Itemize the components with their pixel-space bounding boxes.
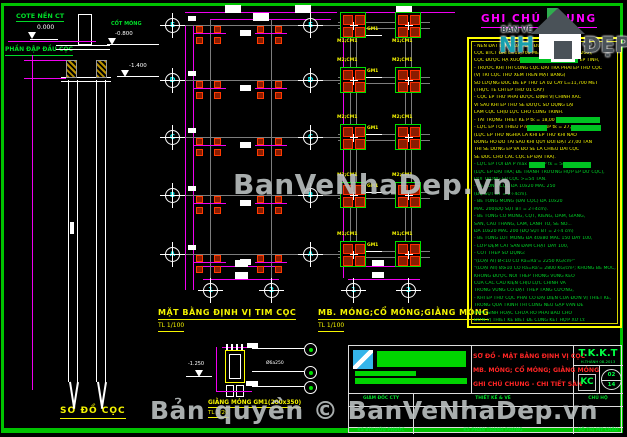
footing: [395, 241, 421, 267]
grid-bubble: 2: [401, 283, 416, 298]
grid-bubble: 2: [264, 283, 279, 298]
stage-date: H.THÀNH 08-2013: [575, 359, 621, 364]
pile-square: [214, 196, 221, 203]
grid-bubble: C: [165, 130, 180, 145]
note-line: - BÊ TÔNG LÓT MÓNG ĐÁ 40x80 MÁC 150 DÀY …: [474, 236, 618, 243]
dimension-line: [348, 279, 420, 280]
redaction-highlight: [571, 125, 601, 131]
divider: [349, 393, 623, 394]
construction-line: [56, 49, 110, 50]
foundation-level-value: -0.800: [115, 31, 133, 37]
dimension-text: [240, 259, 251, 265]
leader-line: [366, 35, 382, 36]
pile-square: [196, 196, 203, 203]
logo-text-main: NH: [499, 34, 534, 57]
footing-pile: [355, 70, 365, 80]
pile-square: [275, 266, 282, 273]
pile-elevation-title: SƠ ĐỒ CỌC: [60, 407, 126, 419]
footing-pile: [410, 70, 420, 80]
signature-name: VÕ THỊ MỸ CHÂU: [573, 428, 623, 433]
note-line: - LỚP ĐỆM CÁT SAN ĐẦM CHẶT DÀY 100,: [474, 244, 618, 251]
drawing-title: GHI CHÚ CHUNG - CHI TIẾT SÀN: [473, 381, 571, 388]
dimension-text: [188, 16, 196, 21]
construction-line: [56, 45, 110, 46]
note-line: SÀN, CẦU THANG, LAM, LANH TÔ, SÊ NÔ...: [474, 222, 618, 229]
footing-pile: [343, 70, 353, 80]
divider: [573, 365, 623, 366]
construction-line: [252, 386, 304, 387]
center-cross: [408, 134, 409, 142]
footing: [395, 12, 421, 38]
dimension-text: [188, 245, 196, 250]
beam-stirrup: [229, 354, 241, 379]
grid-line: [271, 20, 272, 292]
dimension-text: [188, 71, 196, 76]
footing-label: M1;CM1: [392, 233, 412, 238]
footing-label: M1;CM1: [337, 40, 357, 45]
beam-label: GM1: [367, 244, 378, 249]
pile-square: [214, 37, 221, 44]
pile-square: [257, 266, 264, 273]
pile-axis-mark: [255, 88, 287, 89]
dimension-text: [253, 13, 269, 21]
footing-pile: [355, 82, 365, 92]
footing-pile: [343, 15, 353, 25]
footing-pile: [410, 82, 420, 92]
company-bar: [355, 371, 416, 376]
pile-square: [257, 138, 264, 145]
pile-square: [214, 149, 221, 156]
construction-line: [186, 376, 212, 377]
foundation-plan-scale: TL 1/100: [318, 323, 344, 332]
note-line: SẼ ĐÚC CHO CÁC CỌC ÉP ĐẠI TRÀ).: [474, 155, 618, 162]
note-line: - TRƯỚC KHI THI CÔNG CỌC ĐẠI TRÀ PHẢI ÉP…: [474, 66, 618, 73]
leader-line: [366, 77, 382, 78]
note-line: KHÔNG ĐƯỢC NỐI THÉP TRONG VÙNG KÉO: [474, 274, 618, 281]
grid-line: [210, 20, 211, 292]
footing-label: M2;CM1: [392, 116, 412, 121]
rebar-callout: [304, 381, 317, 394]
pile-square: [214, 266, 221, 273]
signature-name: KS PHAN THANH PHONG: [413, 428, 573, 433]
grid-bubble: E: [165, 18, 180, 33]
pile-head-hatch: [96, 60, 107, 78]
note-line: - BÊ TÔNG CỔ MÓNG, CỘT, KIỀNG, DẦM, GIẰN…: [474, 214, 618, 221]
note-line: (THỰC TẾ CHỈ ÉP THỬ 01 CÂY): [474, 88, 618, 95]
grid-bubble: 1: [203, 283, 218, 298]
footing-pile: [355, 139, 365, 149]
dimension-text: [188, 186, 196, 191]
sheet-number-bubble: 02 14: [601, 369, 622, 390]
pile-square: [275, 138, 282, 145]
footing-pile: [343, 27, 353, 37]
footing-pile: [398, 139, 408, 149]
pile-plan-scale: TL 1/100: [158, 323, 184, 332]
foundation-level-label: CỐT MÓNG: [111, 22, 142, 28]
dimension-line: [185, 25, 186, 290]
note-line: "(LOẠI AI) Ø<10 CÓ Ra=Ra'= 2250 KG/cm²": [474, 259, 618, 266]
footing-label: M2;CM1: [337, 59, 357, 64]
footing-pile: [355, 244, 365, 254]
pile-square: [257, 92, 264, 99]
cote-label: COTE NỀN CT: [16, 13, 64, 22]
redaction-highlight: [563, 162, 591, 168]
construction-line: [117, 76, 159, 77]
watermark-bottom: Bản quyền © BanVeNhaDep.vn: [150, 396, 598, 425]
note-line: VÌ SAU KHI ÉP THỬ SẼ ĐƯỢC SỬ DỤNG LẠI: [474, 103, 618, 110]
pile-axis-mark: [194, 203, 226, 204]
pile-axis-mark: [194, 262, 226, 263]
divider: [599, 365, 600, 393]
note-line: ĐÁ 10x20 MÁC 200 (ĐỘ SỤT BT = 2÷4 cm): [474, 229, 618, 236]
note-line: ĐỒNG HỒ ĐO TẢI SAU KHI QUY ĐỔI ĐẠT 27,00…: [474, 140, 618, 147]
logo-text-suffix: ĐẸP: [583, 34, 627, 57]
dimension-text: [372, 272, 384, 278]
pile-square: [214, 92, 221, 99]
grid-bubble: 1: [346, 283, 361, 298]
note-line: "(LOẠI AII) Ø≥10 CÓ Ra=Ra'= 2800 KG/cm²;…: [474, 266, 618, 273]
pencil-icon: [353, 350, 373, 369]
pile-square: [214, 26, 221, 33]
dimension-text: [240, 142, 251, 148]
company-bar: [377, 351, 466, 367]
dimension-line: [216, 347, 217, 391]
center-cross: [353, 22, 354, 30]
pile-square: [275, 255, 282, 262]
pile-square: [257, 37, 264, 44]
center-cross: [353, 77, 354, 85]
note-line: (LỰC ÉP THỬ NGHĨA LÀ KHI ÉP THỬ KHI NÀO: [474, 133, 618, 140]
grid-bubble: B: [165, 188, 180, 203]
beam-label: GM1: [367, 127, 378, 132]
cad-drawing-canvas: COTE NỀN CT 0.000 CỐT MÓNG -0.800 PHẦN Đ…: [0, 0, 627, 437]
dowel-tick: [226, 344, 228, 350]
footing-pile: [343, 82, 353, 92]
pile-square: [196, 81, 203, 88]
dimension-line: [8, 41, 96, 42]
footing-pile: [355, 27, 365, 37]
pile-square: [196, 266, 203, 273]
center-cross: [408, 22, 409, 30]
footing-pile: [398, 15, 408, 25]
grid-bubble: A: [303, 247, 318, 262]
leader-line: [366, 134, 382, 135]
footing-label: M1;CM1: [337, 233, 357, 238]
note-line: THÌ SẼ DỪNG ÉP VÀ ĐÓ SẼ LÀ CHIỀU DÀI CỌC: [474, 147, 618, 154]
footing-label: M1;CM1: [392, 40, 412, 45]
center-cross: [353, 251, 354, 259]
level-flag: [28, 32, 36, 39]
dowel-tick: [236, 344, 238, 350]
pile-axis-mark: [255, 203, 287, 204]
center-cross: [405, 137, 413, 138]
company-bar: [355, 378, 467, 384]
center-cross: [350, 25, 358, 26]
footing-pile: [355, 127, 365, 137]
stirrup-label: Ø6a250: [266, 362, 284, 367]
signature-name: KS BÙI HỮU PHƯỚC: [349, 428, 413, 433]
footing: [395, 67, 421, 93]
footing-pile: [398, 70, 408, 80]
center-cross: [405, 80, 413, 81]
pile-square: [257, 207, 264, 214]
note-line: TRONG QUÁ TRÌNH THI CÔNG NẾU GẶP VẤN ĐỀ: [474, 303, 618, 310]
dimension-line: [216, 391, 252, 392]
note-line: MÁC 200(ĐỘ SỤT BT = 2÷4cm).: [474, 207, 618, 214]
pile-square: [257, 26, 264, 33]
pile-square: [275, 207, 282, 214]
grid-bubble: D: [165, 73, 180, 88]
dimension-line: [203, 279, 279, 280]
footing-pile: [398, 27, 408, 37]
construction-line: [107, 44, 159, 45]
pile-square: [196, 37, 203, 44]
beam-label: GM1: [367, 70, 378, 75]
note-line: - CỌC ÉP THỬ PHẢI ĐƯỢC ĐỊNH VỊ CHÍNH XÁC: [474, 95, 618, 102]
foundation-plan-title: MB. MÓNG;CỔ MÓNG;GIẰNG MÓNG: [318, 309, 489, 320]
dimension-text: [235, 272, 248, 279]
drawing-title: SƠ ĐỒ - MẶT BẰNG ĐỊNH VỊ CỌC: [473, 353, 571, 360]
center-cross: [350, 80, 358, 81]
divider: [602, 380, 621, 381]
footing-pile: [410, 139, 420, 149]
construction-line: [30, 39, 58, 40]
pile-square: [196, 92, 203, 99]
footing-label: M2;CM1: [392, 59, 412, 64]
pile-square: [214, 255, 221, 262]
center-cross: [350, 137, 358, 138]
dimension-text: [225, 5, 241, 13]
footing-pile: [343, 139, 353, 149]
pile-square: [257, 81, 264, 88]
center-cross: [350, 254, 358, 255]
beam-level: -1.250: [188, 362, 204, 368]
pile-square: [196, 26, 203, 33]
footing: [340, 67, 366, 93]
sheet-total: 14: [602, 382, 621, 388]
leader-line: [366, 251, 382, 252]
dimension-text: [246, 381, 258, 386]
center-cross: [405, 254, 413, 255]
redaction-highlight: [556, 117, 600, 123]
cote-value: 0.000: [37, 25, 54, 32]
stage-label: T.K.K.T: [575, 348, 621, 359]
dimension-text: [247, 343, 258, 348]
note-line: CỦA CÁC CẤU KIỆN CHỊU LỰC CHÍNH VÀ: [474, 281, 618, 288]
pile-square: [214, 138, 221, 145]
dimension-text: [240, 85, 251, 91]
beam-label: GM1: [367, 28, 378, 33]
pile-body: [68, 80, 78, 382]
redaction-highlight: [527, 125, 547, 131]
footing-pile: [343, 256, 353, 266]
pile-square: [275, 26, 282, 33]
footing-pile: [398, 82, 408, 92]
footing: [340, 124, 366, 150]
footing-pile: [410, 127, 420, 137]
pile-square: [257, 149, 264, 156]
pile-square: [275, 81, 282, 88]
footing-pile: [355, 256, 365, 266]
footing: [340, 12, 366, 38]
dimension-line: [32, 55, 33, 390]
note-line: - CỐT THÉP SỬ DỤNG:: [474, 251, 618, 258]
footing-pile: [410, 15, 420, 25]
footing-pile: [343, 244, 353, 254]
watermark-center: BanVeNhaDep.vn: [233, 168, 513, 201]
dimension-text: [372, 260, 384, 266]
note-line: SỐ LƯỢNG ĐÚC ĐỂ ÉP THỬ LÀ 02 CÂY L=11,70…: [474, 81, 618, 88]
note-line: ĐƠN VỊ THIẾT KẾ BIẾT ĐỂ CÙNG KẾT HỢP XỬ …: [474, 318, 618, 325]
divider: [471, 346, 472, 393]
pile-axis-mark: [255, 33, 287, 34]
redaction-highlight: [529, 162, 545, 168]
dowel-tick: [231, 344, 233, 350]
pile-square: [196, 255, 203, 262]
pile-axis-mark: [194, 88, 226, 89]
pile-axis-mark: [255, 262, 287, 263]
rebar-callout: [304, 366, 317, 379]
dimension-line: [24, 78, 66, 79]
footing-pile: [410, 256, 420, 266]
drawing-title: MB. MÓNG; CỔ MÓNG; GIẰNG MÓNG: [473, 367, 571, 374]
footing: [395, 124, 421, 150]
construction-line: [252, 348, 304, 349]
grid-bubble: A: [165, 247, 180, 262]
footing-pile: [343, 127, 353, 137]
footing: [340, 241, 366, 267]
pile-square: [275, 37, 282, 44]
pile-axis-mark: [255, 145, 287, 146]
center-cross: [408, 251, 409, 259]
footing-pile: [398, 256, 408, 266]
grid-bubble: D: [303, 73, 318, 88]
pile-square: [214, 207, 221, 214]
callout-dot: [309, 386, 313, 390]
note-line: TRONG VÙNG CÓ ĐẶT THÉP TĂNG CƯỜNG,: [474, 288, 618, 295]
pile-head-hatch: [66, 60, 77, 78]
construction-line: [252, 371, 304, 372]
logo-house-window: [551, 38, 575, 62]
drawing-title-list: SƠ ĐỒ - MẶT BẰNG ĐỊNH VỊ CỌC MB. MÓNG; C…: [473, 349, 571, 392]
footing-pile: [355, 15, 365, 25]
note-line: PHÁT SINH HOẶC CHƯA RÕ PHẢI BÁO CHO: [474, 311, 618, 318]
pile-square: [257, 255, 264, 262]
grid-bubble: C: [303, 130, 318, 145]
discipline-code: KC: [575, 377, 599, 387]
pile-plan-title: MẶT BẰNG ĐỊNH VỊ TIM CỌC: [158, 309, 296, 320]
pile-top-level: -1.400: [129, 63, 147, 69]
note-line: - KHI ÉP THỬ CỌC PHẢI CÓ ĐẠI DIỆN CỦA ĐƠ…: [474, 296, 618, 303]
pile-body: [96, 80, 106, 382]
dimension-line: [24, 60, 66, 61]
pile-axis-mark: [194, 145, 226, 146]
footing-pile: [398, 127, 408, 137]
center-cross: [408, 77, 409, 85]
footing-label: M2;CM1: [337, 116, 357, 121]
dimension-text: [188, 128, 196, 133]
dimension-line: [193, 25, 194, 290]
pile-square: [196, 149, 203, 156]
footing-pile: [410, 27, 420, 37]
callout-dot: [309, 348, 313, 352]
center-cross: [405, 25, 413, 26]
logo-roof: [531, 8, 585, 34]
pile-square: [196, 138, 203, 145]
footing-pile: [410, 244, 420, 254]
dimension-text: [295, 5, 311, 13]
pile-square: [214, 81, 221, 88]
dimension-text: [240, 30, 251, 36]
grid-bubble: E: [303, 18, 318, 33]
callout-dot: [309, 371, 313, 375]
pile-square: [275, 149, 282, 156]
pile-axis-mark: [194, 33, 226, 34]
rebar-callout: [304, 343, 317, 356]
note-line: (VỊ TRÍ CỌC THỬ XEM TRÊN MẶT BẰNG): [474, 73, 618, 80]
footing-pile: [398, 244, 408, 254]
pile-square: [275, 92, 282, 99]
center-cross: [353, 134, 354, 142]
pile-square: [196, 207, 203, 214]
sheet-number: 02: [602, 372, 621, 378]
dowel-tick: [241, 344, 243, 350]
